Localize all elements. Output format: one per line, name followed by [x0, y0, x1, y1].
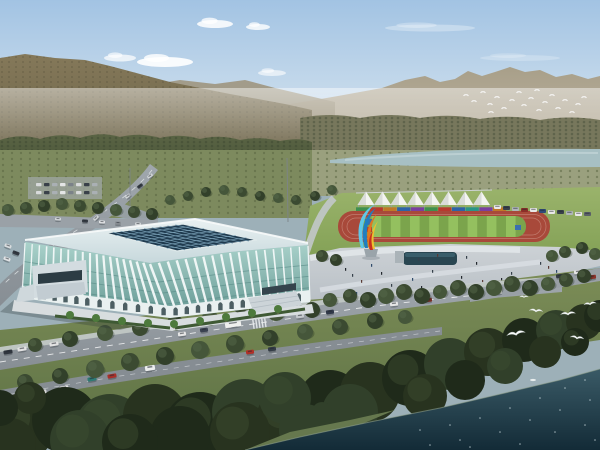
vehicle: [115, 221, 121, 226]
stripe: [468, 216, 478, 237]
sparkle: [554, 431, 556, 433]
arch-opening: [110, 301, 114, 309]
tree-highlight: [547, 251, 553, 257]
cloud-lump: [249, 22, 260, 27]
sparkle: [589, 399, 591, 401]
architectural-rendering: [0, 0, 600, 450]
right-forest-texture: [300, 115, 600, 152]
foreground-tree-highlight: [491, 351, 511, 371]
tree-highlight: [39, 201, 45, 207]
tree-highlight: [369, 315, 377, 323]
car-window: [522, 209, 526, 210]
parked-car: [521, 208, 528, 212]
palm-crown: [144, 319, 152, 327]
arch-opening: [196, 305, 200, 313]
tree-highlight: [158, 349, 167, 358]
parked-car: [60, 183, 66, 186]
parked-car: [92, 191, 98, 194]
tree-highlight: [578, 270, 585, 277]
tree-highlight: [362, 294, 370, 302]
sparkle: [564, 387, 566, 389]
arch-opening: [161, 307, 165, 315]
pedestrian: [418, 258, 419, 261]
arch-opening: [149, 306, 153, 314]
arch-opening: [207, 304, 211, 312]
parked-car: [566, 211, 573, 215]
tree-highlight: [452, 282, 460, 290]
car-window: [576, 213, 580, 214]
pedestrian: [548, 266, 549, 269]
arch-opening: [185, 306, 189, 314]
parked-car: [539, 209, 546, 213]
mat-blue: [515, 225, 521, 230]
car-window: [504, 207, 508, 208]
car-window: [495, 206, 499, 207]
tree-highlight: [88, 362, 97, 371]
tree-highlight: [590, 249, 596, 255]
pedestrian: [437, 254, 438, 257]
vehicle-window: [100, 221, 103, 222]
arch-opening: [229, 301, 233, 309]
parked-car: [512, 207, 519, 211]
foreground-tree: [445, 360, 485, 400]
parked-car: [76, 191, 82, 194]
sparkle: [529, 419, 531, 421]
tree-highlight: [193, 343, 202, 352]
foreground-tree: [312, 402, 332, 422]
pedestrian: [432, 270, 433, 273]
parked-car: [557, 210, 564, 214]
tree-highlight: [129, 207, 135, 213]
parked-car: [84, 183, 90, 186]
foreground-tree-highlight: [17, 384, 35, 402]
parked-car: [52, 183, 58, 186]
tree-highlight: [317, 251, 323, 257]
vehicle: [82, 219, 88, 224]
stripe: [410, 216, 420, 237]
tree-highlight: [560, 247, 566, 253]
parked-car: [36, 183, 42, 186]
car-window: [531, 209, 535, 210]
car-window: [567, 212, 571, 213]
tree-highlight: [311, 192, 316, 197]
foreground-tree-highlight: [56, 415, 89, 448]
stripe: [448, 216, 458, 237]
arch-opening: [218, 302, 222, 310]
vehicle: [99, 220, 105, 225]
pedestrian: [352, 274, 353, 277]
tree-highlight: [220, 186, 225, 191]
palm-crown: [118, 317, 126, 325]
vehicle-window: [116, 222, 119, 223]
arena-building: [0, 219, 314, 331]
vehicle-window: [136, 223, 139, 224]
vehicle: [55, 217, 61, 222]
tree-highlight: [524, 282, 532, 290]
parked-car: [76, 183, 82, 186]
tree-highlight: [328, 186, 333, 191]
palm-crown: [274, 305, 282, 313]
car-window: [540, 210, 544, 211]
parked-car: [584, 212, 591, 216]
parked-car: [84, 191, 90, 194]
parked-car: [548, 210, 555, 214]
pedestrian: [461, 276, 462, 279]
tree-highlight: [380, 290, 388, 298]
tree-highlight: [506, 278, 514, 286]
tree-highlight: [54, 370, 62, 378]
arch-opening: [136, 304, 140, 312]
tree-highlight: [75, 201, 81, 207]
tree-highlight: [416, 290, 424, 298]
tree-highlight: [123, 355, 132, 364]
parking-lot: [28, 177, 102, 199]
tree-highlight: [64, 333, 72, 341]
pedestrian: [466, 256, 467, 259]
tree-highlight: [29, 339, 36, 346]
parked-car: [503, 206, 510, 210]
foreground-tree-highlight: [216, 407, 249, 440]
palm-crown: [170, 320, 178, 328]
cloud-lump: [490, 53, 526, 58]
vehicle: [3, 256, 11, 263]
sparkle: [499, 431, 501, 433]
stripe: [391, 216, 401, 237]
tree-highlight: [399, 311, 406, 318]
pedestrian: [345, 268, 346, 271]
tree-highlight: [292, 196, 297, 201]
arch-opening: [97, 299, 101, 307]
pedestrian: [476, 262, 477, 265]
foreground-tree-highlight: [108, 418, 139, 449]
tree-highlight: [470, 286, 478, 294]
pedestrian: [381, 272, 382, 275]
parked-car: [44, 183, 50, 186]
tree-highlight: [324, 294, 331, 301]
tree-highlight: [542, 278, 549, 285]
arch-opening: [85, 298, 89, 306]
sparkle: [519, 443, 521, 445]
tree-highlight: [228, 337, 237, 346]
car-window: [558, 211, 562, 212]
parked-car: [68, 183, 74, 186]
palm-crown: [222, 313, 230, 321]
tree-highlight: [434, 286, 441, 293]
stripe: [429, 216, 439, 237]
foreground-tree-highlight: [264, 376, 293, 405]
sparkle: [584, 379, 586, 381]
tree-highlight: [274, 194, 279, 199]
cloud-lump: [262, 68, 275, 73]
cloud-lump: [144, 54, 169, 62]
pedestrian: [556, 270, 557, 273]
palm-crown: [248, 309, 256, 317]
tree-highlight: [93, 203, 99, 209]
pedestrian: [511, 272, 512, 275]
sparkle: [559, 409, 561, 411]
parked-car: [52, 191, 58, 194]
arch-opening: [123, 302, 127, 310]
sparkle: [449, 424, 451, 426]
tree-highlight: [299, 326, 307, 334]
tree-highlight: [560, 274, 567, 281]
stripe: [487, 216, 497, 237]
cloud-lump: [396, 22, 437, 28]
sparkle: [429, 444, 431, 446]
tree-highlight: [21, 203, 27, 209]
tree-highlight: [184, 192, 189, 197]
vehicle: [4, 243, 12, 250]
foreground-tree-highlight: [469, 332, 495, 358]
tree-highlight: [147, 209, 153, 215]
stripe: [506, 216, 516, 237]
car-window: [513, 208, 517, 209]
pool-highlight: [405, 253, 455, 257]
sparkle: [419, 429, 421, 431]
arch-opening: [74, 296, 78, 304]
parked-car: [44, 191, 50, 194]
car-window: [585, 213, 589, 214]
tree-highlight: [166, 196, 171, 201]
cloud-lump: [108, 52, 122, 58]
tree-highlight: [256, 192, 261, 197]
cloud-lump: [202, 18, 218, 24]
arch-opening: [173, 307, 177, 315]
sparkle: [469, 446, 471, 448]
tree-highlight: [57, 199, 63, 205]
parked-car: [530, 208, 537, 212]
car-window: [549, 211, 553, 212]
parked-car: [60, 191, 66, 194]
sparkle: [594, 439, 596, 441]
small-boat: [530, 379, 536, 381]
parked-car: [494, 205, 501, 209]
foreground-tree-highlight: [540, 313, 562, 335]
tree-highlight: [19, 376, 27, 384]
sparkle: [479, 417, 481, 419]
vehicle: [12, 250, 20, 257]
tree-highlight: [202, 188, 207, 193]
pool-pavilion: [395, 251, 404, 263]
tree-highlight: [264, 332, 272, 340]
tree-highlight: [488, 282, 496, 290]
arch-opening: [241, 300, 245, 308]
sparkle: [509, 407, 511, 409]
parked-car: [68, 191, 74, 194]
palm-crown: [92, 314, 100, 322]
foreground-tree: [529, 336, 561, 368]
tree-highlight: [334, 321, 342, 329]
tree-highlight: [238, 188, 243, 193]
vehicle-window: [56, 218, 59, 219]
pedestrian: [412, 278, 413, 281]
scene-canvas: [0, 0, 600, 450]
tree-highlight: [577, 243, 583, 249]
sparkle: [539, 397, 541, 399]
infield: [362, 216, 526, 237]
tree-highlight: [344, 290, 351, 297]
pedestrian: [540, 262, 541, 265]
parked-car: [575, 212, 582, 216]
sparkle: [459, 439, 461, 441]
sculpture-pedestal: [364, 249, 378, 257]
tree-highlight: [398, 286, 406, 294]
tree-highlight: [111, 205, 117, 211]
tree-highlight: [331, 255, 337, 261]
pedestrian: [361, 280, 362, 283]
parked-car: [36, 191, 42, 194]
palm-crown: [196, 317, 204, 325]
pedestrian: [391, 284, 392, 287]
tree-highlight: [3, 205, 9, 211]
sparkle: [584, 424, 586, 426]
vehicle-window: [83, 220, 86, 221]
pedestrian: [371, 264, 372, 267]
parked-car: [92, 183, 98, 186]
palm-crown: [66, 311, 74, 319]
foreground-tree-highlight: [407, 377, 431, 401]
